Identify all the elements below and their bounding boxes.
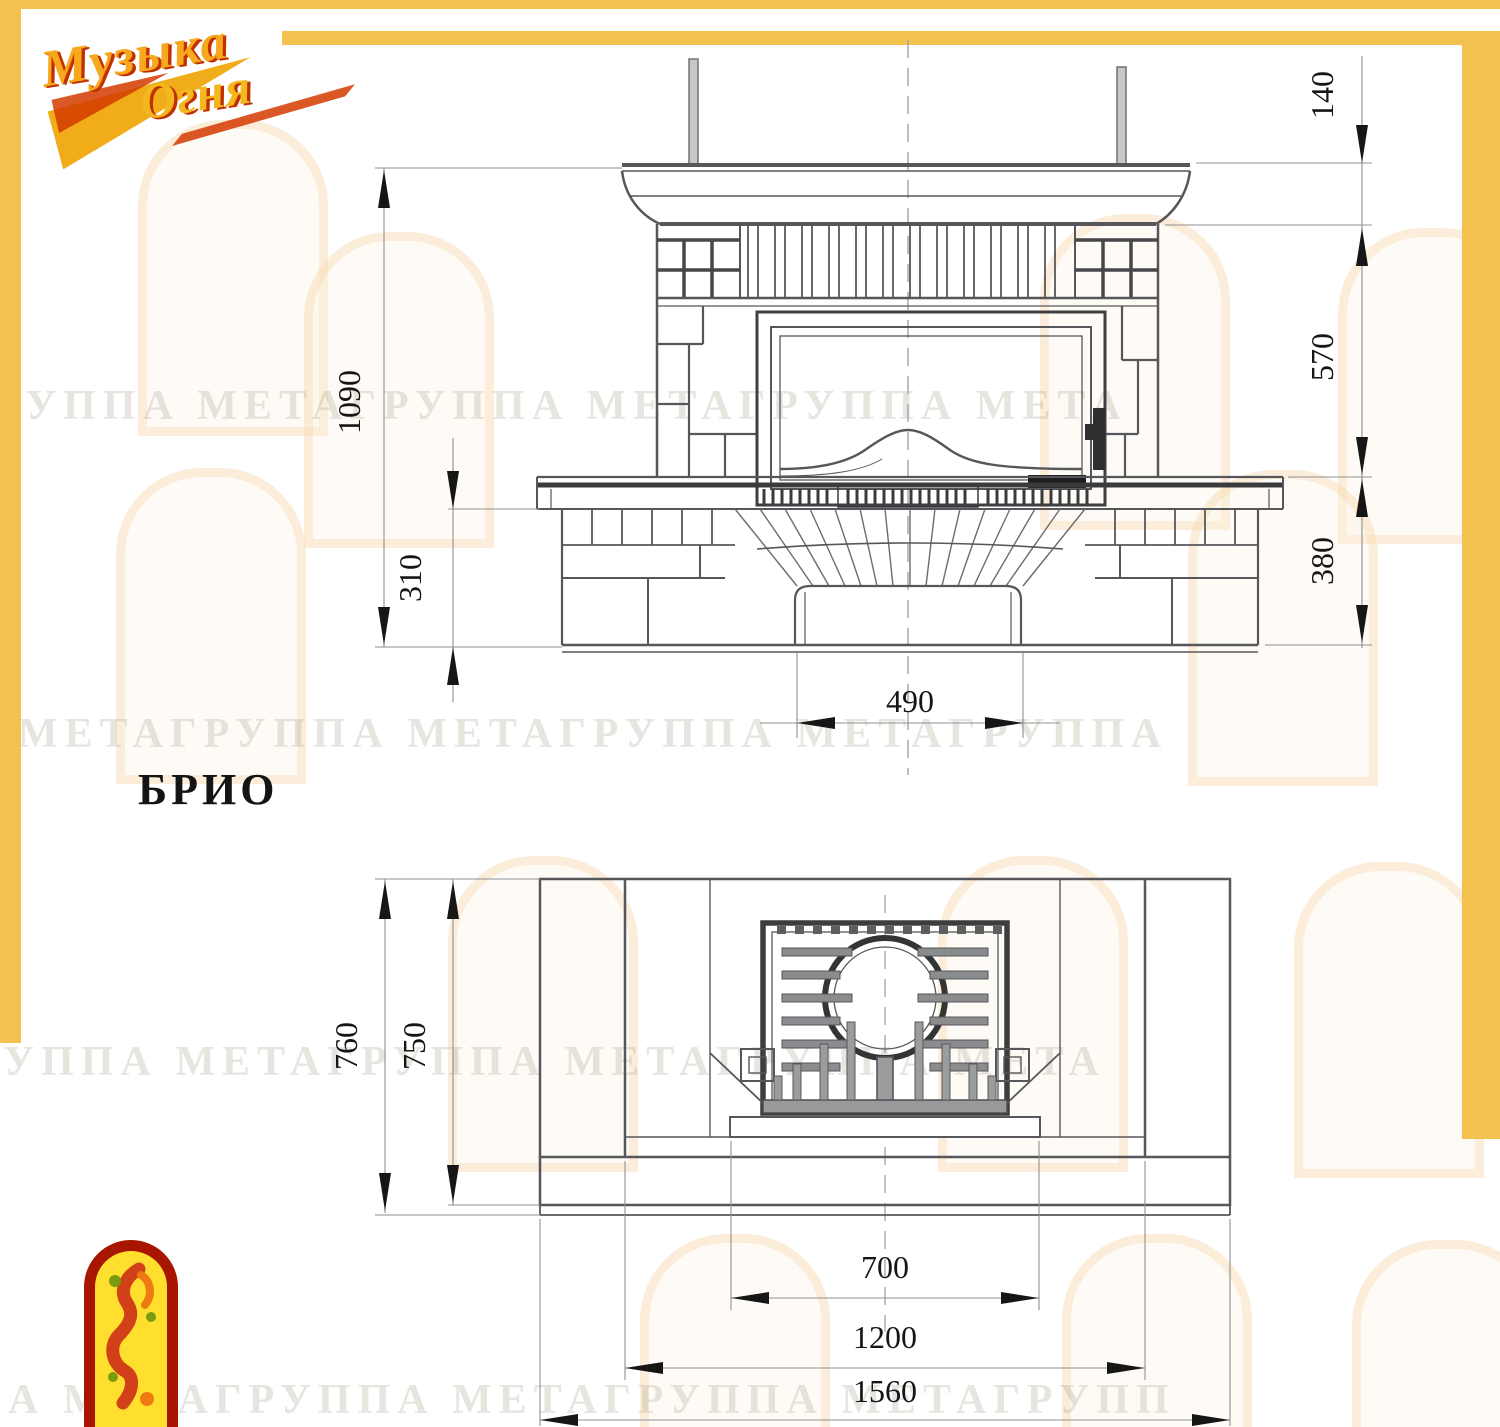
firebox-top-vents bbox=[777, 926, 1002, 934]
plan-view-dimensions: 760 750 700 1200 1560 bbox=[328, 879, 1230, 1426]
scanned-fireplace-drawing-page: ГРУППА МЕТАГРУППА МЕТАГРУППА МЕТА МЕТАГР… bbox=[0, 0, 1500, 1427]
door-flame-guard-wave bbox=[780, 430, 1082, 469]
firebox-front-band bbox=[763, 1100, 1007, 1113]
dim-body-depth: 750 bbox=[396, 1022, 432, 1070]
dim-total-height: 1090 bbox=[331, 370, 367, 434]
left-pier-joints bbox=[657, 306, 757, 477]
front-view bbox=[537, 40, 1283, 775]
technical-drawing: 1090 310 140 570 380 490 bbox=[0, 0, 1500, 1427]
dim-niche-width: 490 bbox=[886, 683, 934, 719]
dim-body-width: 1200 bbox=[853, 1319, 917, 1355]
door-handle-icon bbox=[1093, 408, 1105, 470]
mantel-crown bbox=[622, 165, 1190, 224]
dim-body-height: 570 bbox=[1304, 333, 1340, 381]
dentils bbox=[748, 224, 1055, 298]
dim-crown-height: 140 bbox=[1304, 71, 1340, 119]
dim-base-height: 380 bbox=[1304, 537, 1340, 585]
grate-bars bbox=[774, 1022, 996, 1100]
dim-plinth-height: 310 bbox=[392, 554, 428, 602]
dim-firebox-width: 700 bbox=[861, 1249, 909, 1285]
dim-total-depth: 760 bbox=[328, 1022, 364, 1070]
right-pier-joints bbox=[1105, 306, 1158, 477]
dimension-arrows bbox=[378, 125, 1368, 729]
front-sill bbox=[730, 1117, 1040, 1137]
jack-arch bbox=[735, 509, 1085, 586]
dimension-arrows bbox=[379, 881, 1230, 1426]
front-view-dimensions: 1090 310 140 570 380 490 bbox=[331, 56, 1372, 738]
dim-total-width: 1560 bbox=[853, 1373, 917, 1409]
